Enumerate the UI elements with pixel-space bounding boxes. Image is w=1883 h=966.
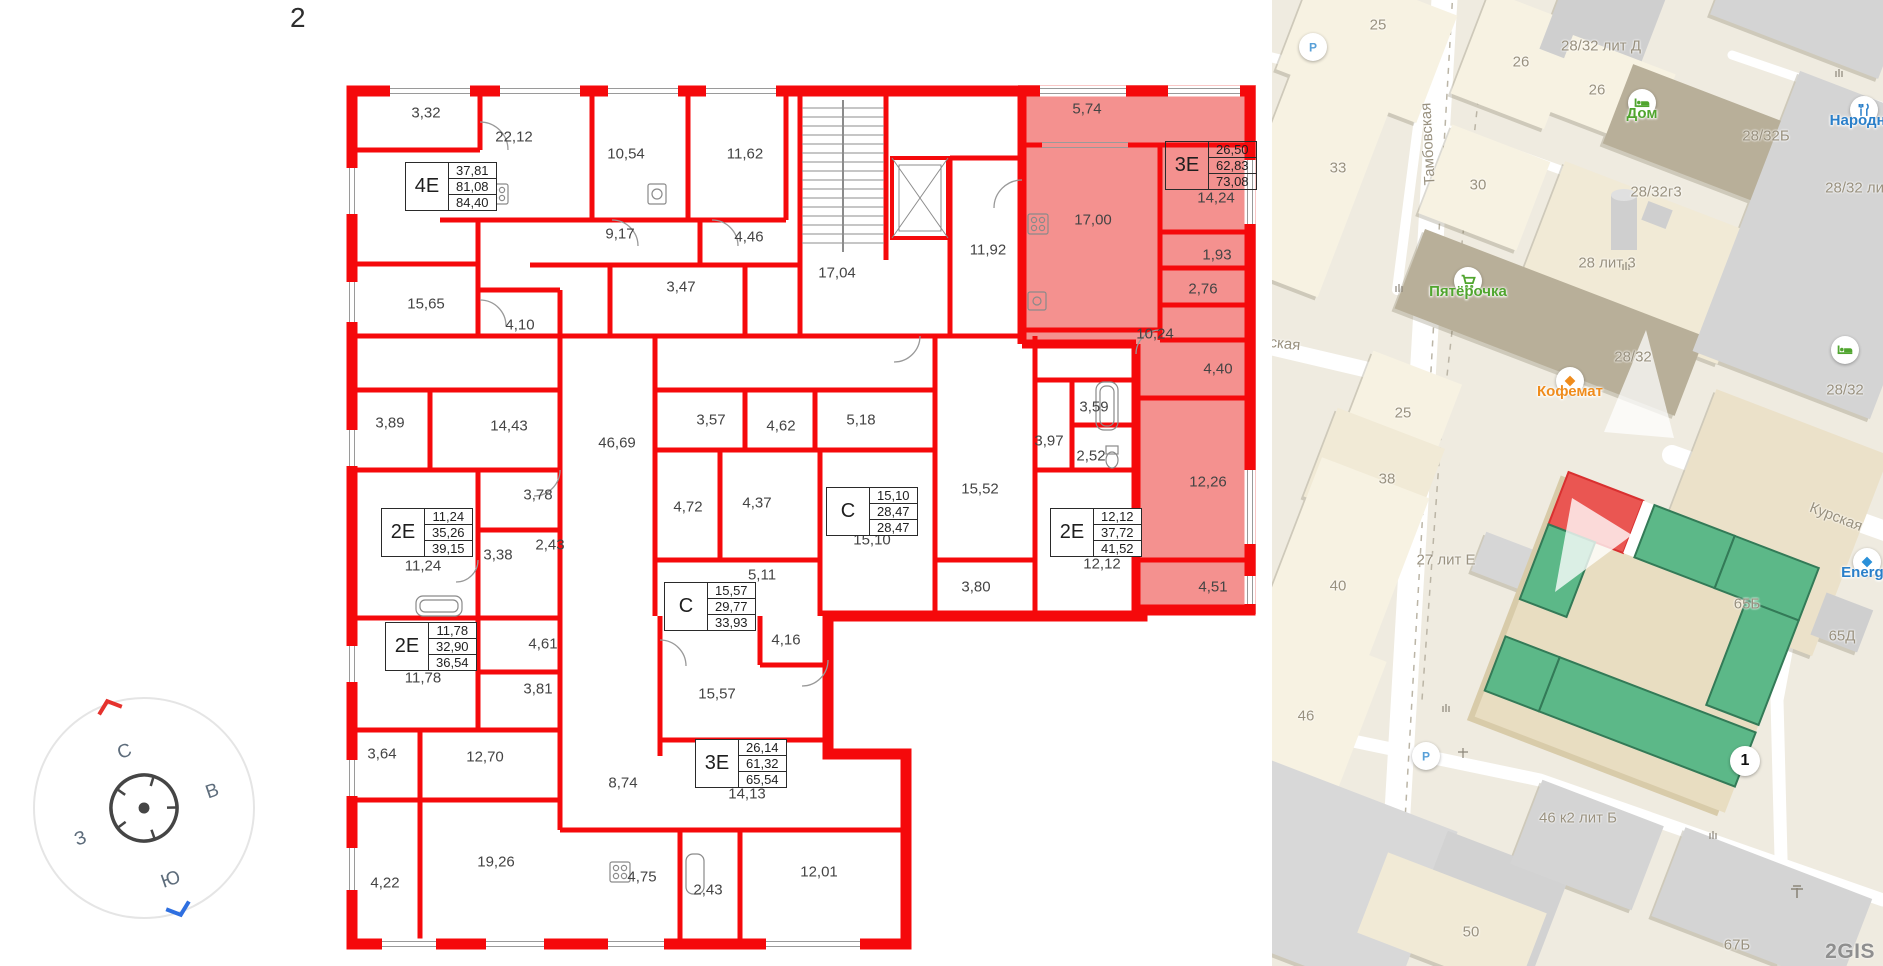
svg-text:P: P — [1422, 750, 1430, 764]
map-building-label: 30 — [1470, 177, 1487, 194]
poi-hotel[interactable] — [1831, 336, 1859, 364]
room-area-label: 10,24 — [1136, 326, 1174, 343]
room-area-label: 5,11 — [748, 567, 776, 584]
apartment-type-label: 3Е — [696, 740, 738, 787]
compass-north-arrow — [96, 697, 122, 714]
poi-parking-south[interactable]: P — [1412, 742, 1440, 770]
apartment-area-value: 15,10 — [870, 488, 917, 504]
apartment-info-box[interactable]: 3Е26,5062,8373,08 — [1165, 141, 1257, 190]
room-area-label: 46,69 — [598, 435, 636, 452]
map-building-label: 46 — [1298, 708, 1315, 725]
compass-east-label: В — [203, 779, 222, 803]
apartment-area-value: 62,83 — [1209, 158, 1256, 174]
room-area-label: 15,65 — [407, 296, 445, 313]
map-building-label: 46 к2 лит Б — [1539, 810, 1617, 827]
room-area-label: 5,74 — [1072, 101, 1101, 118]
map-building-label: 27 лит Е — [1416, 552, 1475, 569]
apartment-area-value: 84,40 — [449, 195, 496, 210]
room-area-label: 12,12 — [1083, 556, 1121, 573]
room-area-label: 3,81 — [523, 681, 552, 698]
apartment-area-value: 11,24 — [425, 509, 472, 525]
room-area-label: 14,43 — [490, 418, 528, 435]
apartment-area-value: 28,47 — [870, 504, 917, 520]
apartment-area-value: 61,32 — [739, 756, 786, 772]
map-building-label: 67Б — [1724, 937, 1751, 954]
map-building-label: 28 лит 3 — [1578, 255, 1635, 272]
room-area-label: 3,57 — [696, 412, 725, 429]
apartment-area-value: 39,15 — [425, 541, 472, 556]
apartment-area-value: 37,72 — [1094, 525, 1141, 541]
apartment-area-value: 32,90 — [429, 639, 476, 655]
map-building-label: 28/32 лит Д — [1561, 38, 1641, 55]
map-building-label: 65Б — [1734, 596, 1761, 613]
room-area-label: 14,13 — [728, 786, 766, 803]
poi-narodny[interactable]: Народны — [1850, 96, 1878, 124]
map-building-label: 25 — [1370, 17, 1387, 34]
poi-parking-north[interactable]: P — [1299, 33, 1327, 61]
entrance-badge[interactable]: 1 — [1730, 746, 1760, 776]
apartment-area-value: 35,26 — [425, 525, 472, 541]
parking-icon: P — [1412, 742, 1440, 770]
room-area-label: 1,93 — [1202, 247, 1231, 264]
map-building-label: 28/32 лит — [1825, 180, 1883, 197]
room-area-label: 22,12 — [495, 129, 533, 146]
map-building-label: 26 — [1589, 82, 1606, 99]
room-area-label: 15,52 — [961, 481, 999, 498]
apartment-area-value: 29,77 — [708, 599, 755, 615]
apartment-info-box[interactable]: 3Е26,1461,3265,54 — [695, 739, 787, 788]
apartment-info-box[interactable]: 2Е11,2435,2639,15 — [381, 508, 473, 557]
apartment-area-value: 15,57 — [708, 583, 755, 599]
poi-label: Народны — [1830, 112, 1883, 129]
apartment-info-box[interactable]: 2Е12,1237,7241,52 — [1050, 508, 1142, 557]
poi-kofemat[interactable]: Кофемат — [1556, 367, 1584, 395]
room-area-label: 11,24 — [405, 558, 441, 575]
room-area-label: 12,70 — [466, 749, 504, 766]
room-area-label: 2,52 — [1076, 448, 1105, 465]
apartment-area-value: 36,54 — [429, 655, 476, 670]
room-area-label: 4,16 — [771, 632, 800, 649]
map-building-label: 25 — [1395, 405, 1412, 422]
map-building-label: 28/32 — [1614, 349, 1652, 366]
map-building-label: 28/32г3 — [1630, 184, 1681, 201]
room-area-label: 17,04 — [818, 265, 856, 282]
room-area-label: 19,26 — [477, 854, 515, 871]
room-area-label: 8,74 — [608, 775, 637, 792]
room-area-label: 3,32 — [411, 105, 440, 122]
apartment-area-value: 26,14 — [739, 740, 786, 756]
room-area-label: 5,18 — [846, 412, 875, 429]
compass-west-label: З — [72, 827, 90, 851]
map-provider-logo: 2GIS — [1825, 940, 1875, 964]
poi-energo[interactable]: Energo — [1853, 548, 1881, 576]
room-area-label: 2,76 — [1188, 281, 1217, 298]
room-area-label: 3,47 — [666, 279, 695, 296]
room-area-label: 11,78 — [405, 670, 441, 687]
room-area-label: 4,72 — [673, 499, 702, 516]
room-area-label: 3,64 — [367, 746, 396, 763]
room-area-label: 3,89 — [375, 415, 404, 432]
poi-label: Energo — [1841, 564, 1883, 581]
apartment-type-label: 3Е — [1166, 142, 1208, 189]
bed-icon — [1831, 336, 1859, 364]
apartment-type-label: 4Е — [406, 163, 448, 210]
poi-pyaterochka[interactable]: Пятёрочка — [1454, 267, 1482, 295]
map-panel[interactable]: 252628/32 лит Д2628/32Б333028/32г328/32 … — [1272, 0, 1883, 966]
apartment-area-value: 28,47 — [870, 520, 917, 535]
room-area-label: 12,01 — [800, 864, 838, 881]
apartment-info-box[interactable]: 2Е11,7832,9036,54 — [385, 622, 477, 671]
room-area-label: 14,24 — [1197, 190, 1235, 207]
apartment-area-value: 11,78 — [429, 623, 476, 639]
room-area-label: 2,43 — [535, 537, 564, 554]
apartment-info-box[interactable]: 4Е37,8181,0884,40 — [405, 162, 497, 211]
apartment-type-label: 2Е — [1051, 509, 1093, 556]
room-area-label: 11,92 — [970, 242, 1006, 259]
apartment-info-box[interactable]: С15,5729,7733,93 — [664, 582, 756, 631]
apartment-type-label: С — [827, 488, 869, 535]
apartment-type-label: С — [665, 583, 707, 630]
map-building-label: 28/32Б — [1742, 128, 1789, 145]
map-building-label: ская — [1272, 334, 1301, 354]
map-building-label: 33 — [1330, 160, 1347, 177]
room-area-label: 9,17 — [605, 226, 634, 243]
room-area-label: 15,57 — [698, 686, 736, 703]
apartment-area-value: 12,12 — [1094, 509, 1141, 525]
room-area-label: 17,00 — [1074, 212, 1112, 229]
apartment-type-label: 2Е — [382, 509, 424, 556]
room-area-label: 3,80 — [961, 579, 990, 596]
room-area-label: 4,10 — [505, 317, 534, 334]
apartment-area-value: 33,93 — [708, 615, 755, 630]
apartment-type-label: 2Е — [386, 623, 428, 670]
room-area-label: 4,75 — [627, 869, 656, 886]
poi-dom[interactable]: Дом — [1628, 89, 1656, 117]
room-area-label: 4,51 — [1198, 579, 1227, 596]
map-building-label: 38 — [1379, 471, 1396, 488]
apartment-area-value: 65,54 — [739, 772, 786, 787]
map-building-label: 40 — [1330, 578, 1347, 595]
room-area-label: 3,78 — [523, 487, 552, 504]
room-area-label: 4,37 — [742, 495, 771, 512]
room-area-label: 3,38 — [483, 547, 512, 564]
apartment-info-box[interactable]: С15,1028,4728,47 — [826, 487, 918, 536]
room-area-label: 11,62 — [727, 146, 763, 163]
room-area-label: 3,59 — [1079, 399, 1108, 416]
room-area-label: 4,62 — [766, 418, 795, 435]
apartment-area-value: 41,52 — [1094, 541, 1141, 556]
map-building-label: 50 — [1463, 924, 1480, 941]
apartment-area-value: 37,81 — [449, 163, 496, 179]
compass-south-label: Ю — [158, 867, 183, 893]
room-area-label: 12,26 — [1189, 474, 1227, 491]
room-area-label: 4,40 — [1203, 361, 1232, 378]
room-area-label: 10,54 — [607, 146, 645, 163]
map-building-label: 65Д — [1829, 628, 1856, 645]
compass: С В З Ю — [28, 692, 260, 924]
poi-label: Дом — [1627, 105, 1658, 122]
room-area-label: 4,46 — [734, 229, 763, 246]
room-area-label: 4,22 — [370, 875, 399, 892]
room-area-label: 4,61 — [528, 636, 557, 653]
room-area-label: 2,43 — [693, 882, 722, 899]
compass-south-arrow — [166, 901, 192, 918]
compass-north-label: С — [115, 740, 135, 764]
poi-label: Пятёрочка — [1429, 283, 1507, 300]
apartment-selector-screen: 2 — [0, 0, 1883, 966]
parking-icon: P — [1299, 33, 1327, 61]
map-building-label: 28/32 — [1826, 382, 1864, 399]
apartment-area-value: 26,50 — [1209, 142, 1256, 158]
svg-text:P: P — [1309, 41, 1317, 55]
apartment-area-value: 81,08 — [449, 179, 496, 195]
map-building-label: 26 — [1513, 54, 1530, 71]
poi-label: Кофемат — [1537, 383, 1603, 400]
apartment-area-value: 73,08 — [1209, 174, 1256, 189]
room-area-label: 3,97 — [1034, 433, 1063, 450]
